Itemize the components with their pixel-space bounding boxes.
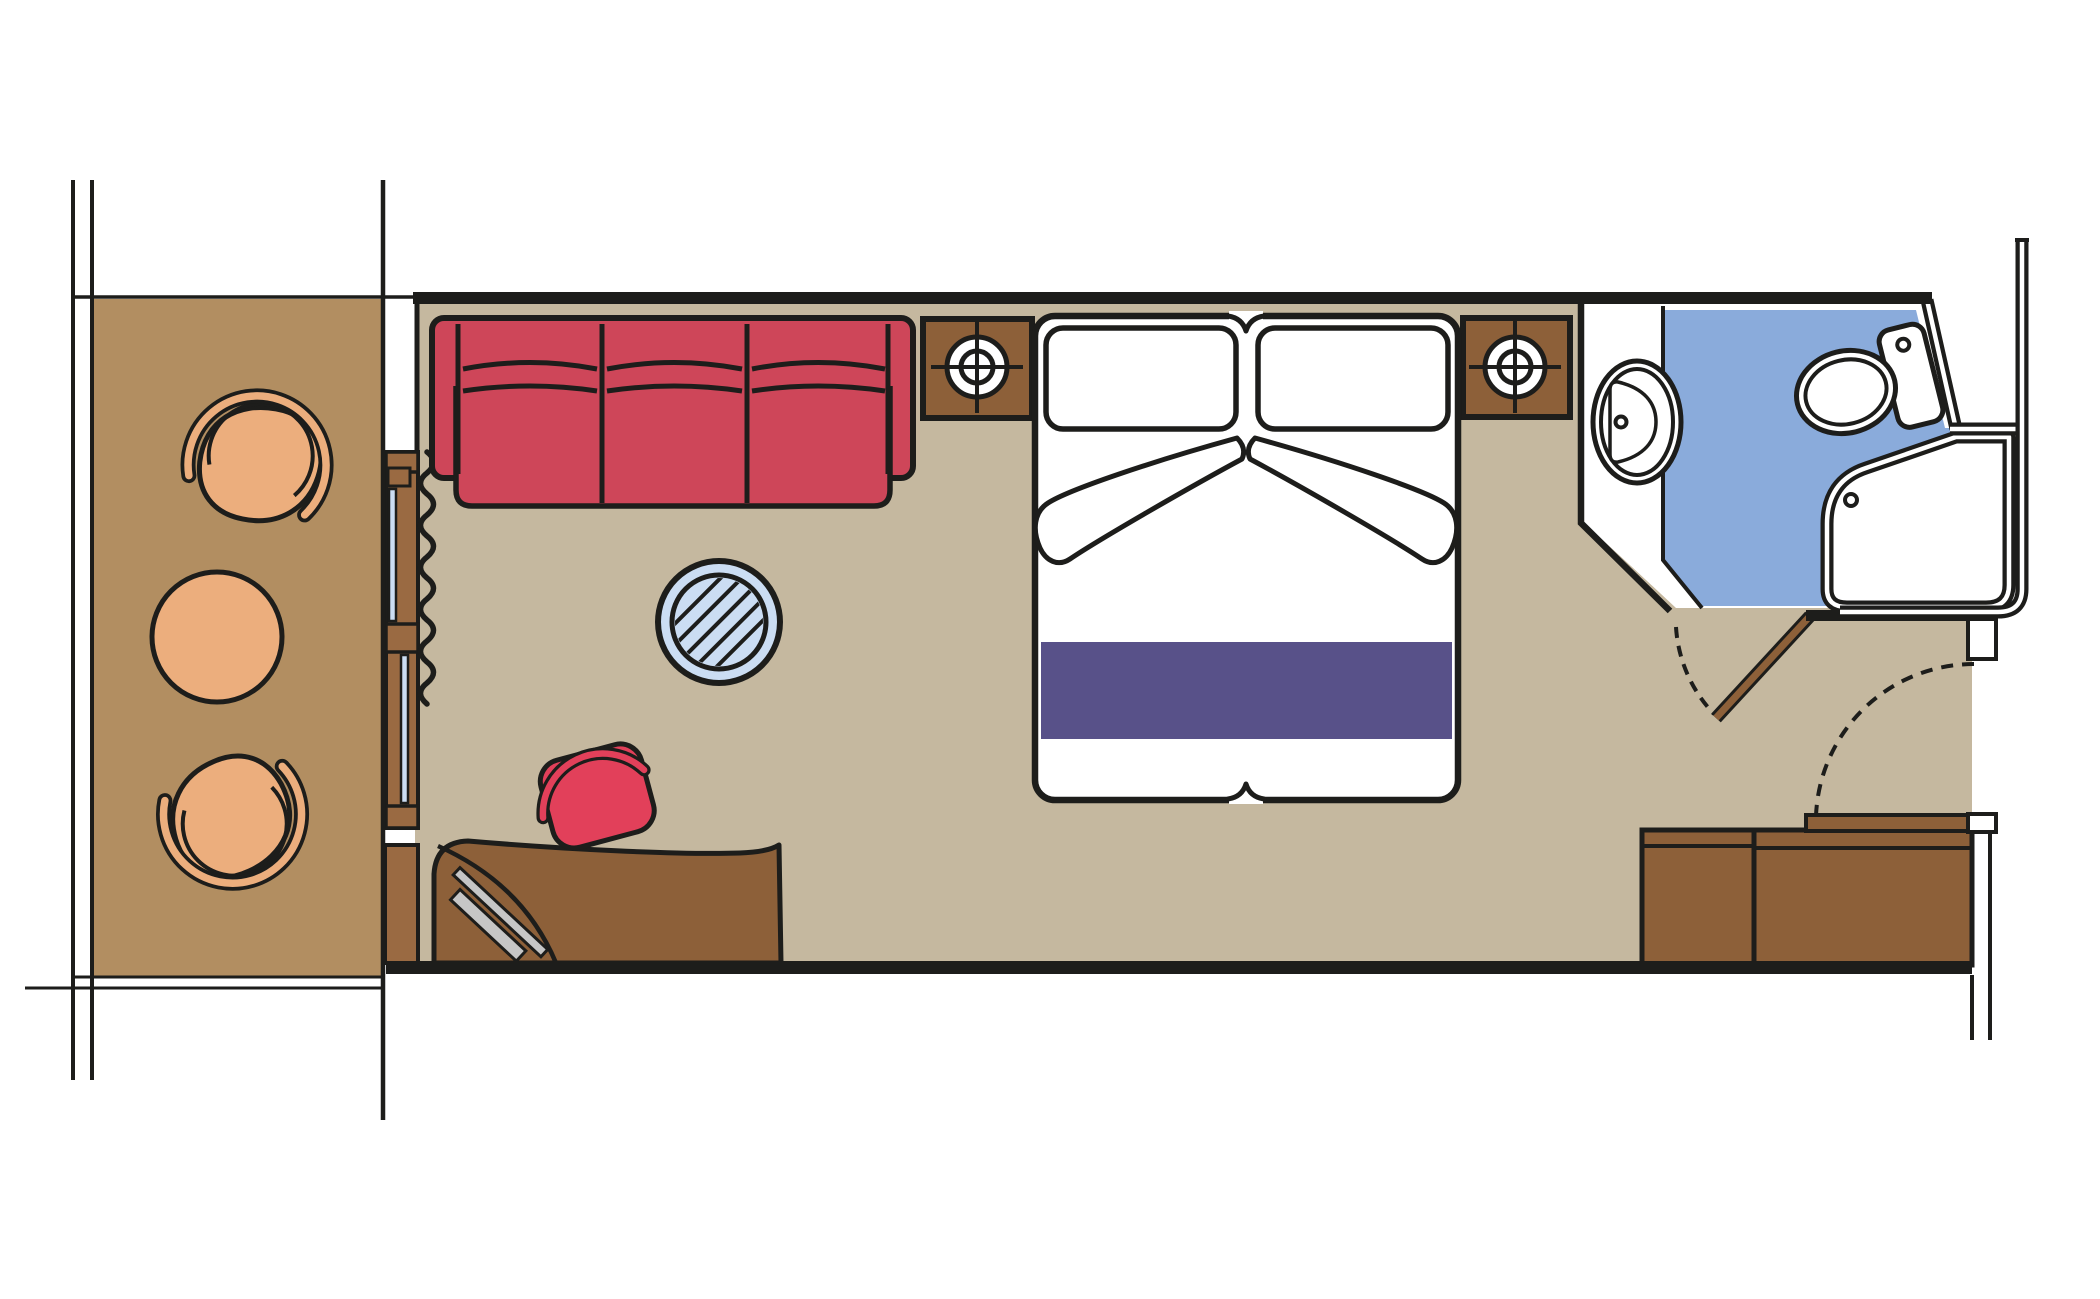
- balcony: [25, 180, 415, 1080]
- wardrobe-left-door: [1642, 830, 1754, 965]
- nightstand-left: [923, 319, 1032, 418]
- sliding-glass-door: [385, 296, 418, 963]
- flush-button: [1896, 337, 1911, 352]
- round-deck-table: [152, 572, 282, 702]
- glass-pane-lower: [401, 655, 408, 803]
- slider-lock-block: [388, 468, 410, 486]
- slider-mid-block: [386, 624, 418, 652]
- entry-jamb-bottom: [1968, 814, 1996, 832]
- desk: [434, 841, 781, 971]
- pillow-right: [1258, 328, 1448, 429]
- slider-bottom-block: [386, 806, 418, 828]
- cabin-bottom-wall: [386, 961, 1972, 974]
- entry-door-leaf-open: [1806, 815, 1970, 831]
- sink-icon: [1593, 361, 1681, 483]
- nightstand-right: [1463, 318, 1570, 417]
- sofa-seat-cushions: [456, 386, 890, 506]
- wall-pocket-section: [385, 845, 418, 963]
- bed-runner: [1041, 642, 1452, 739]
- glass-pane-upper: [389, 489, 396, 621]
- cabin-top-wall: [413, 292, 1932, 304]
- wardrobe-right-door: [1754, 830, 1972, 965]
- sofa-three-seat: [432, 318, 913, 506]
- shower-drain: [1845, 494, 1857, 506]
- double-bed: [1035, 311, 1458, 804]
- wardrobe: [1642, 830, 1972, 965]
- pillow-left: [1046, 328, 1236, 429]
- floorplan-drawing: [0, 0, 2100, 1299]
- floorplan-page: Cabin floor plan (top view): [0, 0, 2100, 1299]
- round-glass-table: [658, 561, 780, 683]
- entry-jamb-top: [1968, 619, 1996, 659]
